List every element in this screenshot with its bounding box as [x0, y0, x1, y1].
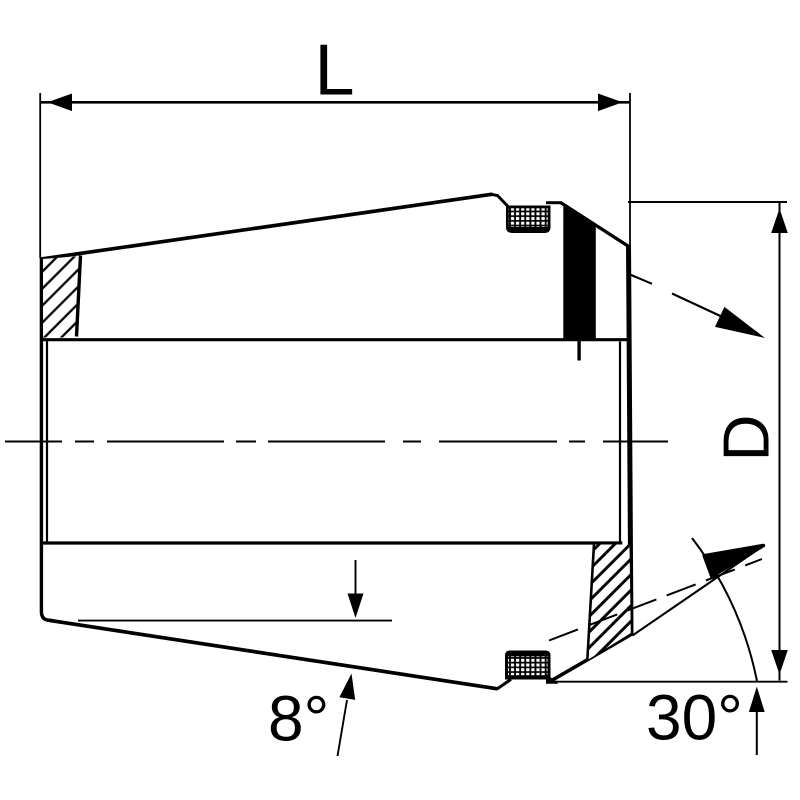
svg-text:D: D — [710, 415, 783, 462]
svg-text:8°: 8° — [268, 683, 329, 755]
svg-text:30°: 30° — [646, 682, 743, 754]
svg-text:L: L — [315, 31, 355, 111]
